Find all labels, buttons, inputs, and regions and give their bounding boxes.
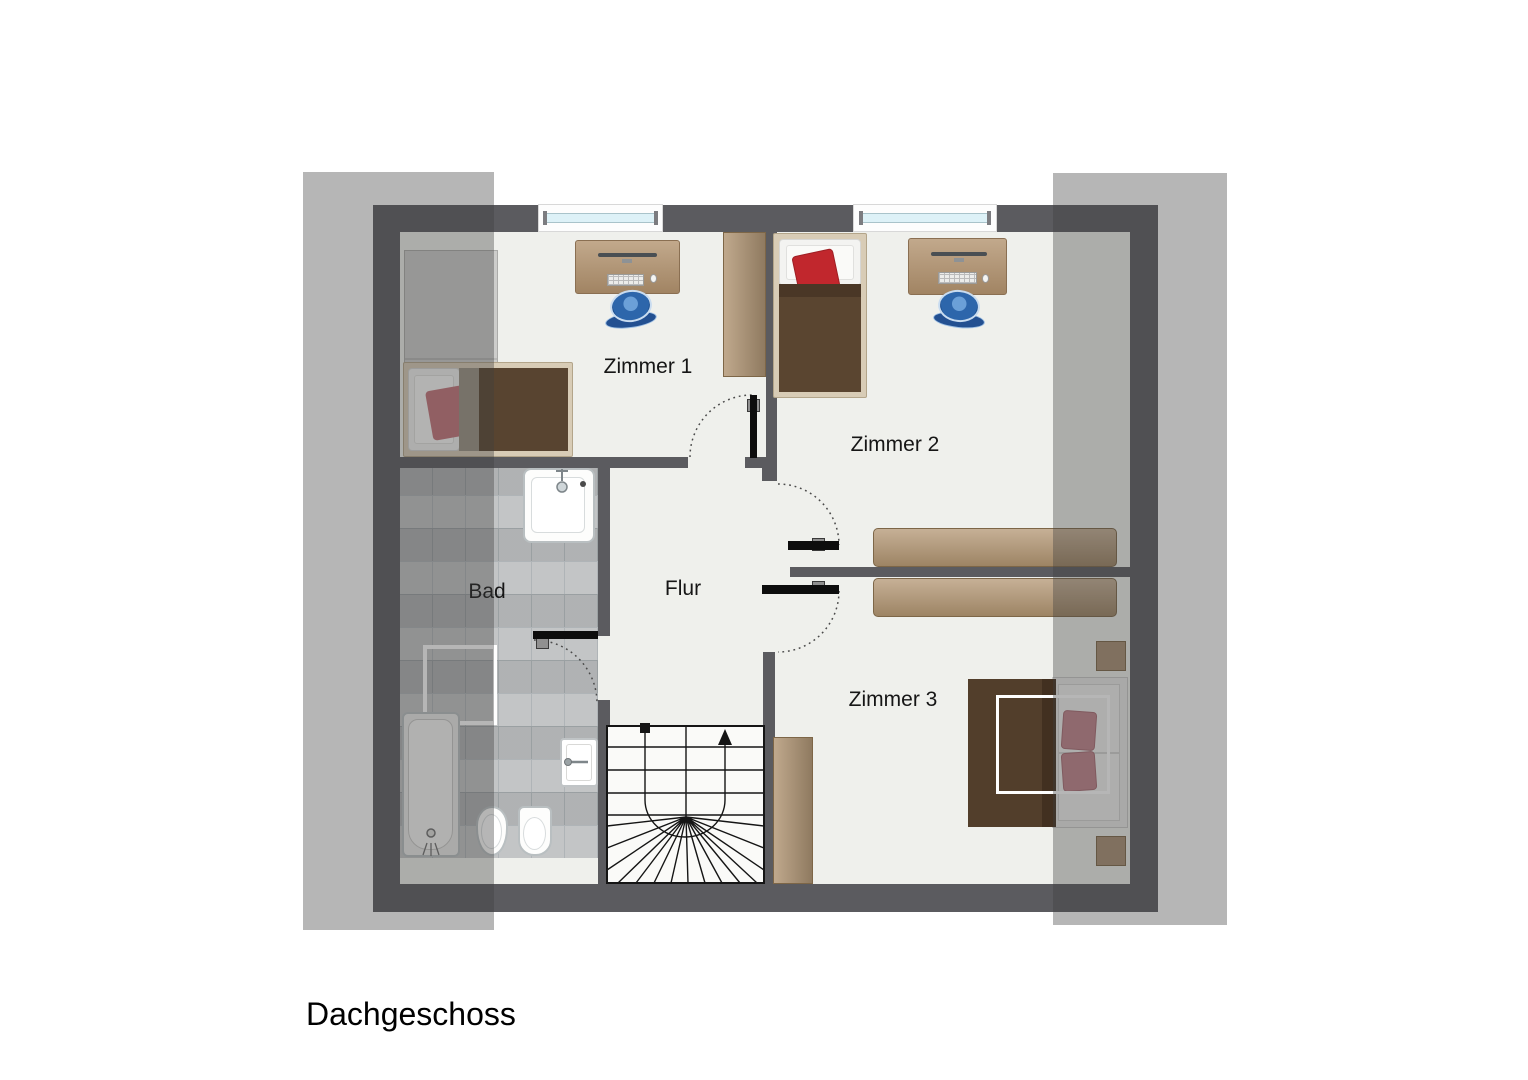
door-zimmer2-leaf (788, 541, 839, 550)
desk-zimmer2 (908, 238, 1007, 295)
window-1-cap-right (654, 211, 658, 225)
door-zimmer1-leaf (750, 395, 757, 458)
room-label-zimmer1: Zimmer 1 (604, 355, 693, 379)
window-2-cap-right (987, 211, 991, 225)
window-1-cap-left (543, 211, 547, 225)
roof-slope-overlay-right (1053, 173, 1227, 925)
window-2-cap-left (859, 211, 863, 225)
sink-basin (531, 477, 585, 533)
monitor-zimmer1 (598, 253, 657, 257)
roof-window-2-glass (861, 213, 989, 223)
room-label-zimmer3: Zimmer 3 (849, 688, 938, 712)
room-label-zimmer2: Zimmer 2 (851, 433, 940, 457)
keyboard-zimmer2 (938, 272, 977, 284)
cabinet-zimmer3 (773, 737, 813, 884)
toilet-bowl (523, 817, 546, 850)
roof-slope-overlay-left (303, 172, 494, 930)
wall-bad-flur-upper (598, 457, 610, 636)
bed-zimmer2-blanket-fold (779, 284, 861, 297)
floor-title: Dachgeschoss (306, 996, 516, 1033)
monitor-zimmer2-stand (954, 258, 964, 262)
room-label-flur: Flur (665, 577, 701, 601)
bed-zimmer2-blanket (779, 284, 861, 392)
mouse-zimmer2 (982, 274, 989, 283)
monitor-zimmer2 (931, 252, 987, 256)
wall-flur-cap-top (762, 457, 777, 481)
hand-basin-inner (566, 744, 592, 781)
door-zimmer3-leaf (762, 585, 839, 594)
staircase (606, 725, 765, 884)
keyboard-zimmer1 (607, 274, 644, 286)
mouse-zimmer1 (650, 274, 657, 283)
roof-window-1-glass (545, 213, 656, 223)
tall-wardrobe-zimmer1 (723, 232, 766, 377)
floor-plan-page: Zimmer 1 Zimmer 2 Zimmer 3 Bad Flur Dach… (0, 0, 1528, 1080)
monitor-zimmer1-stand (622, 259, 632, 263)
door-bad-leaf (533, 631, 598, 639)
